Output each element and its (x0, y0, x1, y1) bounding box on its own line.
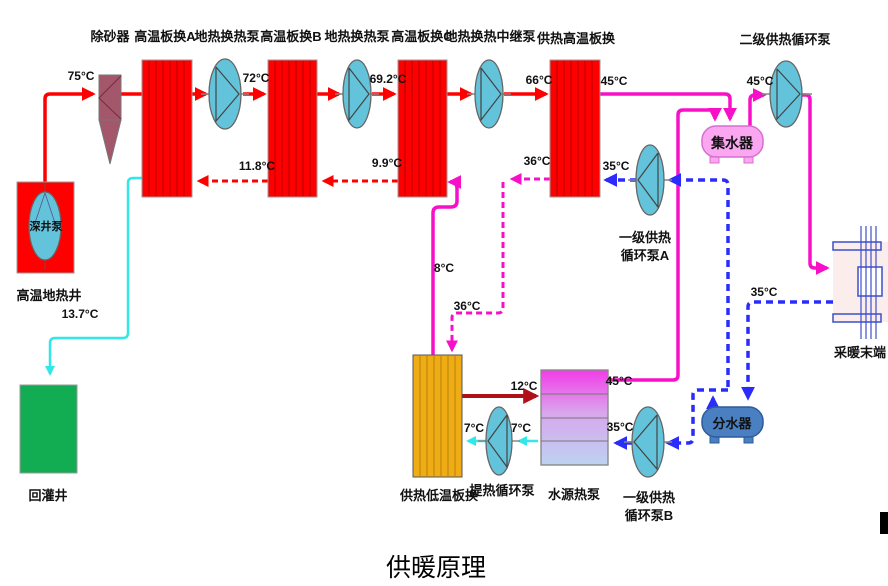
temp-hx-d-return-out: 36°C (524, 154, 551, 168)
reinjection-well-block (20, 385, 77, 473)
temp-hp-supply: 45°C (606, 374, 633, 388)
heat-lift-pump-icon (486, 407, 512, 475)
label-secondary-heating-pump: 二级供热循环泵 (739, 32, 830, 47)
page-title: 供暖原理 (386, 554, 486, 582)
label-heating-low-hx: 供热低温板换 (399, 488, 479, 503)
label-geo-relay-pump: 地热换热中继泵 (444, 29, 535, 44)
temp-hp-return: 35°C (607, 420, 634, 434)
temp-lift-left: 7°C (464, 421, 484, 435)
label-collector: 集水器 (710, 135, 754, 151)
label-heat-lift-pump: 提热循环泵 (469, 483, 534, 498)
secondary-heating-pump-icon (770, 61, 802, 127)
temp-return-c-to-b: 9.9°C (372, 156, 402, 170)
heating-mid-return-dashed-magenta-pipe (452, 179, 550, 350)
temp-pump-a-out: 35°C (603, 159, 630, 173)
diagram-canvas: 除砂器 高温板换A 地热换热泵 高温板换B 地热换热泵 高温板换C 地热换热中继… (0, 0, 888, 586)
label-heating-high-hx: 供热高温板换 (536, 31, 616, 46)
temp-well-out: 75°C (68, 69, 95, 83)
label-geo-pump-1: 地热换热泵 (194, 29, 259, 44)
label-water-source-hp: 水源热泵 (548, 487, 600, 502)
label-primary-pump-b-1: 一级供热 (623, 490, 675, 505)
hx-a-block (142, 60, 192, 197)
label-primary-pump-a-1: 一级供热 (619, 230, 671, 245)
temp-low-hx-to-hp: 12°C (511, 379, 538, 393)
heating-low-hx-block (413, 355, 462, 477)
geo-pump-2-icon (343, 60, 371, 128)
heating-principle-diagram: 除砂器 高温板换A 地热换热泵 高温板换B 地热换热泵 高温板换C 地热换热中继… (0, 0, 888, 586)
temp-after-pump1: 72°C (243, 71, 270, 85)
label-primary-pump-a-2: 循环泵A (621, 248, 670, 263)
sand-remover-icon (99, 75, 121, 164)
label-geothermal-well: 高温地热井 (16, 288, 81, 303)
label-sand-remover: 除砂器 (90, 29, 130, 44)
primary-pump-b-icon (632, 407, 664, 477)
temp-low-hx-out: 8°C (434, 261, 454, 275)
temp-mid-return: 36°C (454, 299, 481, 313)
label-hx-a: 高温板换A (134, 29, 196, 44)
water-source-heat-pump-block (541, 370, 608, 465)
label-distributor: 分水器 (712, 416, 752, 431)
temp-hx-d-out: 45°C (601, 74, 628, 88)
temp-collector-out: 45°C (747, 74, 774, 88)
label-reinjection-well: 回灌井 (28, 488, 67, 503)
label-hx-b: 高温板换B (260, 29, 321, 44)
label-primary-pump-b-2: 循环泵B (625, 508, 673, 523)
temp-lift-right: 7°C (511, 421, 531, 435)
heating-return-dashed-blue-pipe (606, 180, 833, 443)
temp-reinjection: 13.7°C (62, 307, 99, 321)
label-deep-well-pump: 深井泵 (30, 219, 63, 233)
right-edge-black-bar (880, 512, 888, 534)
label-geo-pump-2: 地热换热泵 (324, 29, 389, 44)
hx-b-block (268, 60, 317, 197)
geo-pump-1-icon (209, 59, 241, 129)
heating-terminal-radiator (833, 226, 888, 339)
label-heating-terminal: 采暖末端 (833, 345, 886, 360)
primary-pump-a-icon (636, 145, 664, 215)
temp-terminal-return: 35°C (751, 285, 778, 299)
geo-relay-pump-icon (475, 60, 503, 128)
heating-high-hx-block (550, 60, 600, 197)
temp-after-pump3: 66°C (526, 73, 553, 87)
temp-after-pump2: 69.2°C (370, 72, 407, 86)
temp-return-b-to-a: 11.8°C (239, 159, 275, 173)
